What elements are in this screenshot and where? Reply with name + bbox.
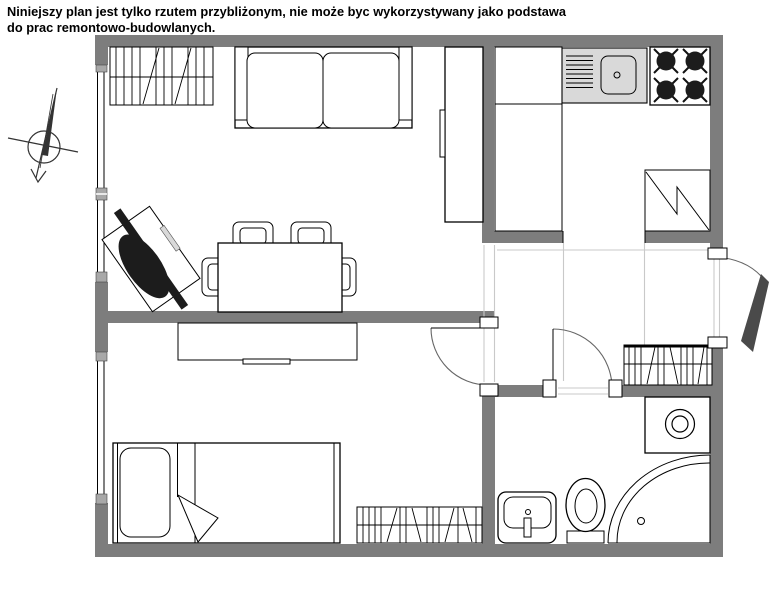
desk-icon: [178, 323, 357, 364]
floor-plan-drawing: [0, 0, 771, 603]
dining-set: [202, 222, 356, 312]
corner-shower-icon: [608, 455, 710, 543]
bedroom-door-icon: [431, 317, 498, 396]
wall-living-bedroom: [108, 311, 495, 323]
wall-left-upper: [95, 35, 108, 65]
window-living-room: [96, 65, 107, 282]
wardrobe-living-icon: [110, 47, 213, 105]
wall-left-mid: [95, 282, 108, 352]
wardrobe-hall-icon: [624, 345, 712, 385]
stove-icon: [650, 47, 710, 105]
wall-kitchen-living: [482, 47, 494, 243]
entrance-door-icon: [708, 248, 769, 352]
wall-bedroom-bathroom: [482, 384, 495, 544]
bed-icon: [113, 443, 340, 543]
washing-machine-icon: [645, 397, 710, 453]
toilet-icon: [566, 479, 605, 544]
north-arrow-icon: [8, 88, 78, 182]
fridge-icon: [645, 170, 710, 231]
window-bedroom: [96, 352, 107, 504]
kitchen-counter-side-icon: [495, 104, 562, 231]
sofa-icon: [235, 47, 412, 128]
wall-top: [95, 35, 723, 47]
tall-cabinet-icon: [440, 47, 483, 222]
wall-bottom: [95, 544, 723, 557]
wall-hall-bathroom-right: [610, 385, 710, 397]
kitchen-sink-icon: [562, 48, 647, 103]
wall-right-upper: [710, 35, 723, 248]
wall-kitchen-hall-left: [482, 231, 563, 243]
kitchen-counter-top-icon: [495, 47, 562, 104]
dining-table-icon: [218, 243, 342, 312]
wall-kitchen-hall-right: [645, 231, 710, 243]
floor-plan-page: Niniejszy plan jest tylko rzutem przybli…: [0, 0, 771, 603]
armchair-icon: [93, 193, 209, 324]
washbasin-icon: [498, 492, 556, 543]
bathroom-door-icon: [543, 329, 622, 397]
wall-left-lower: [95, 503, 108, 557]
wardrobe-bedroom-icon: [357, 507, 482, 543]
